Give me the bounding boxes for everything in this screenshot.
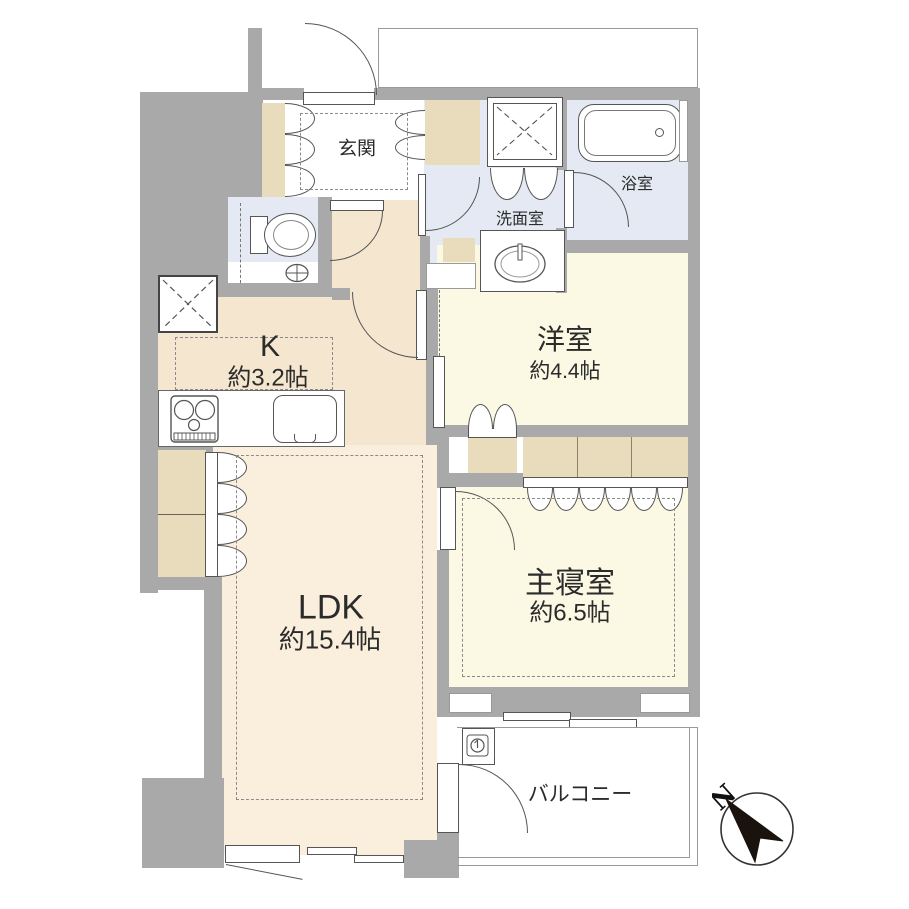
shoe-cabinet-left (262, 103, 285, 197)
washroom-counter (426, 263, 476, 289)
washroom-cabinet (443, 238, 475, 262)
vanity-sink (492, 240, 548, 284)
balcony-door-leaf (437, 763, 459, 833)
bathroom-label: 浴室 (621, 170, 653, 194)
closet (468, 437, 517, 473)
wall (140, 92, 263, 197)
ldk-storage-door-panel (205, 452, 218, 577)
washroom-label: 洗面室 (496, 205, 544, 229)
shoe-cabinet-right (425, 100, 480, 165)
wardrobe-divider (577, 437, 578, 477)
wall (140, 197, 228, 283)
washing-machine (493, 103, 557, 160)
balcony-sliding-door-panel (503, 712, 571, 721)
toilet-bowl-inner (273, 220, 309, 250)
sliding-door-pocket (433, 356, 445, 428)
pipe-space-box (158, 275, 218, 333)
wall (565, 240, 700, 253)
wall (332, 288, 350, 300)
genkan-label: 玄関 (338, 134, 376, 161)
closet-door-panel (468, 428, 517, 438)
kitchen-sink-notch (294, 434, 316, 443)
ldk-storage-divider (158, 514, 206, 515)
balcony-label: バルコニー (528, 778, 633, 808)
toilet-dashed-line (240, 203, 241, 283)
entrance-door-swing (305, 23, 377, 95)
sliding-window-panel (354, 855, 404, 863)
faucet-icon (463, 729, 493, 763)
wall (218, 283, 332, 297)
western-room-label: 洋室 (537, 318, 593, 358)
compass-icon: N (712, 780, 822, 890)
wall (140, 577, 222, 590)
wardrobe-divider (631, 437, 632, 477)
bedroom-wall-window (449, 693, 492, 713)
wall (404, 840, 437, 878)
washroom-door-leaf (418, 174, 426, 236)
wall (204, 590, 222, 778)
balcony-faucet-box (462, 728, 495, 765)
ldk-size: 約15.4帖 (279, 620, 382, 657)
sliding-door-opening (439, 290, 440, 356)
sliding-window-panel (307, 847, 357, 855)
bathroom-door-leaf (564, 170, 574, 228)
bedroom-size: 約6.5帖 (529, 593, 610, 628)
wall (262, 88, 304, 100)
wall (437, 428, 449, 488)
toilet-hand-basin (284, 262, 310, 284)
wall (142, 778, 224, 868)
awning-window-flap (226, 864, 303, 880)
western-room-size: 約4.4帖 (529, 355, 600, 385)
stove (170, 395, 220, 444)
wall (688, 88, 700, 717)
compass-arrow (726, 799, 783, 862)
wall (140, 283, 158, 593)
x-cross-icon (494, 104, 555, 158)
floor-plan: 玄関 洗面室 浴室 洋室 約4.4帖 K 約3.2帖 LDK 約15.4帖 主寝… (0, 0, 909, 909)
bedroom-wall-window (640, 693, 690, 713)
awning-window (225, 845, 300, 863)
x-cross-icon (160, 277, 216, 331)
wall (248, 28, 262, 94)
hanger-rail (523, 477, 688, 488)
bedroom-door-leaf (440, 487, 456, 550)
toilet-door-leaf (330, 200, 384, 211)
wall (437, 550, 449, 692)
wall (449, 473, 523, 487)
wardrobe (523, 437, 688, 477)
common-corridor (378, 28, 698, 88)
bathtub-drain (655, 128, 664, 137)
kitchen-size: 約3.2帖 (227, 358, 308, 393)
wall (437, 833, 459, 878)
bathroom-window (679, 100, 688, 162)
